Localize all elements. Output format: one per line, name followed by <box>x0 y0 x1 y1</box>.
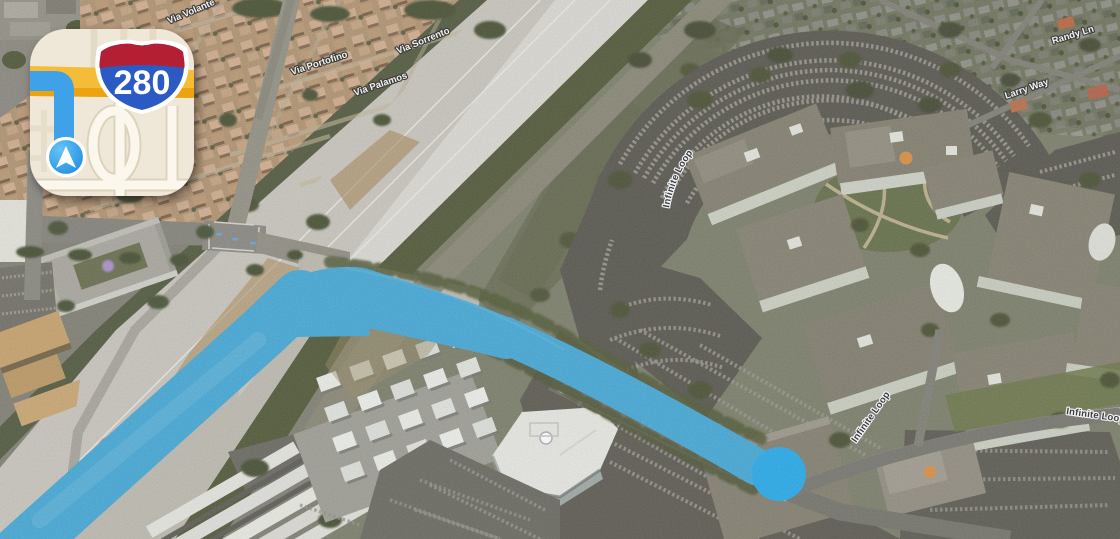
svg-text:280: 280 <box>114 64 171 102</box>
